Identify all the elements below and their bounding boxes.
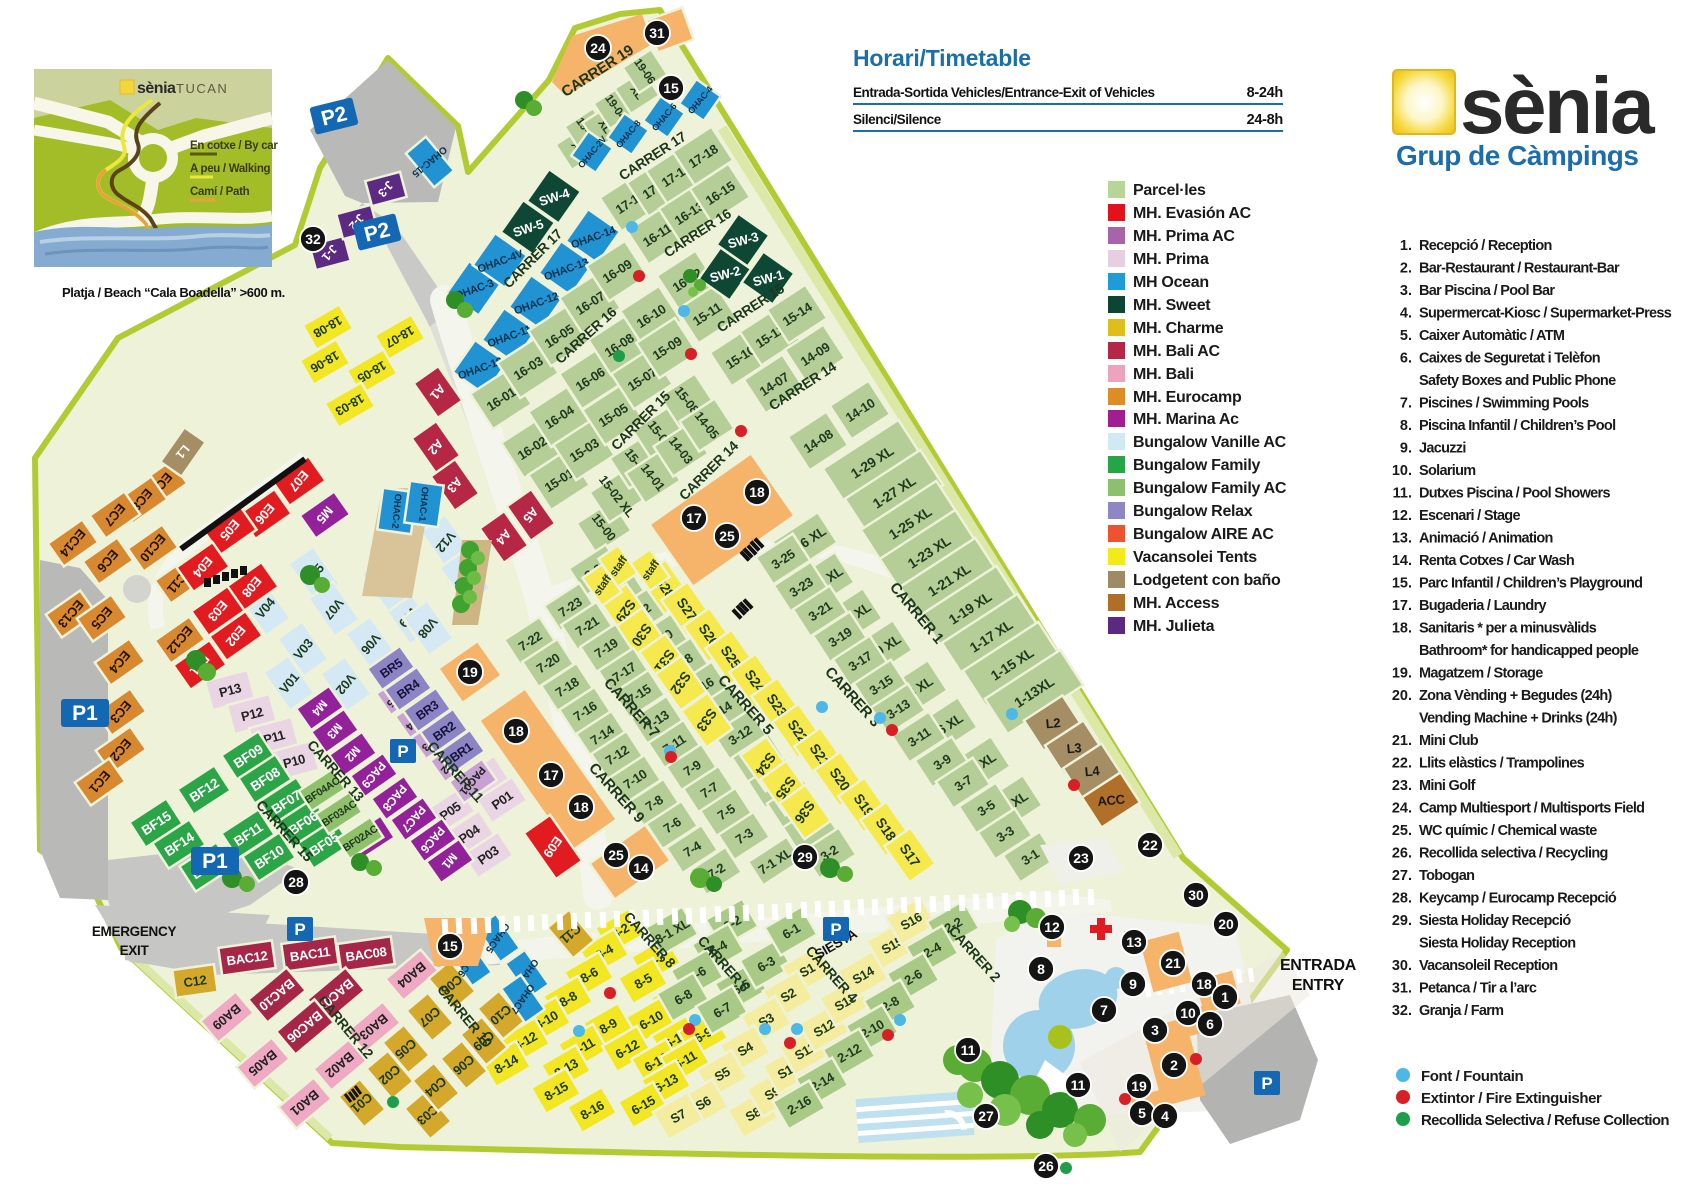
svg-text:19.: 19.: [1392, 666, 1412, 682]
svg-text:Silenci/Silence: Silenci/Silence: [853, 112, 942, 127]
svg-text:9: 9: [1129, 976, 1137, 992]
svg-text:18: 18: [1196, 976, 1212, 992]
svg-text:En cotxe / By car: En cotxe / By car: [190, 140, 278, 152]
svg-text:Entrada-Sortida Vehicles/Entra: Entrada-Sortida Vehicles/Entrance-Exit o…: [853, 85, 1155, 100]
svg-text:8-24h: 8-24h: [1247, 85, 1283, 101]
svg-text:13: 13: [1126, 934, 1142, 950]
svg-text:Lodgetent con baño: Lodgetent con baño: [1133, 572, 1281, 589]
svg-text:31: 31: [649, 25, 665, 41]
svg-text:TUCAN: TUCAN: [176, 81, 228, 96]
svg-text:4: 4: [1161, 1108, 1169, 1124]
svg-text:Piscines / Swimming Pools: Piscines / Swimming Pools: [1419, 396, 1589, 412]
svg-text:MH. Evasión AC: MH. Evasión AC: [1133, 205, 1252, 222]
svg-text:Parcel·les: Parcel·les: [1133, 182, 1206, 199]
svg-text:32: 32: [305, 231, 321, 247]
svg-text:WC químic / Chemical waste: WC químic / Chemical waste: [1419, 823, 1597, 839]
svg-text:Bathroom* for handicapped peop: Bathroom* for handicapped people: [1419, 643, 1639, 659]
svg-text:Bugaderia / Laundry: Bugaderia / Laundry: [1419, 598, 1547, 614]
svg-text:ENTRADA: ENTRADA: [1280, 957, 1357, 974]
svg-text:MH. Sweet: MH. Sweet: [1133, 297, 1211, 314]
svg-text:MH. Prima: MH. Prima: [1133, 251, 1209, 268]
svg-text:P: P: [397, 742, 408, 761]
svg-text:Renta Cotxes / Car Wash: Renta Cotxes / Car Wash: [1419, 553, 1574, 569]
svg-text:29.: 29.: [1392, 913, 1412, 929]
svg-text:Platja / Beach “Cala Boadella”: Platja / Beach “Cala Boadella” >600 m.: [62, 285, 285, 300]
svg-text:30.: 30.: [1392, 958, 1412, 974]
svg-text:Mini Golf: Mini Golf: [1419, 778, 1476, 794]
svg-text:24.: 24.: [1392, 801, 1412, 817]
svg-text:Caixer Automàtic / ATM: Caixer Automàtic / ATM: [1419, 328, 1565, 344]
svg-text:MH. Access: MH. Access: [1133, 595, 1220, 612]
svg-text:Siesta Holiday Recepció: Siesta Holiday Recepció: [1419, 913, 1571, 929]
svg-text:29: 29: [797, 849, 813, 865]
svg-text:6: 6: [1206, 1016, 1214, 1032]
svg-text:6.: 6.: [1400, 351, 1412, 367]
svg-text:MH. Marina Ac: MH. Marina Ac: [1133, 411, 1239, 428]
svg-text:sènia: sènia: [1460, 61, 1655, 150]
svg-text:Safety Boxes and Public Phone: Safety Boxes and Public Phone: [1419, 373, 1616, 389]
svg-text:ACC: ACC: [1097, 791, 1126, 808]
svg-text:19: 19: [462, 664, 478, 680]
svg-text:Tobogan: Tobogan: [1419, 868, 1474, 884]
svg-text:EMERGENCY: EMERGENCY: [92, 924, 177, 939]
svg-text:18: 18: [508, 723, 524, 739]
svg-text:14.: 14.: [1392, 553, 1412, 569]
svg-text:25: 25: [719, 528, 735, 544]
svg-text:15: 15: [442, 938, 458, 954]
svg-text:23.: 23.: [1392, 778, 1412, 794]
svg-text:Recollida selectiva / Recyclin: Recollida selectiva / Recycling: [1419, 846, 1608, 862]
svg-text:P1: P1: [202, 850, 228, 873]
svg-text:MH. Prima AC: MH. Prima AC: [1133, 228, 1235, 245]
svg-text:11: 11: [961, 1042, 976, 1058]
svg-text:3: 3: [1151, 1022, 1159, 1038]
svg-text:Piscina Infantil / Children’s: Piscina Infantil / Children’s Pool: [1419, 418, 1615, 434]
svg-text:9.: 9.: [1400, 441, 1412, 457]
svg-text:Bungalow Family: Bungalow Family: [1133, 457, 1260, 474]
svg-text:8.: 8.: [1400, 418, 1412, 434]
svg-text:ENTRY: ENTRY: [1292, 977, 1345, 994]
svg-text:Grup de Càmpings: Grup de Càmpings: [1396, 140, 1638, 171]
svg-text:11.: 11.: [1393, 486, 1412, 502]
svg-text:Zona Vènding + Begudes (24h): Zona Vènding + Begudes (24h): [1419, 688, 1613, 704]
svg-text:Recollida Selectiva / Refuse C: Recollida Selectiva / Refuse Collection: [1421, 1112, 1669, 1129]
svg-text:Mini Club: Mini Club: [1419, 733, 1479, 749]
svg-text:28: 28: [288, 874, 304, 890]
svg-text:Extintor / Fire Extinguisher: Extintor / Fire Extinguisher: [1421, 1090, 1602, 1107]
svg-text:Font / Fountain: Font / Fountain: [1421, 1068, 1524, 1085]
svg-text:Granja / Farm: Granja / Farm: [1419, 1003, 1503, 1019]
svg-text:Siesta Holiday Reception: Siesta Holiday Reception: [1419, 936, 1575, 952]
svg-text:4.: 4.: [1400, 306, 1412, 322]
svg-text:A peu / Walking: A peu / Walking: [190, 163, 271, 175]
svg-text:Caixes de Seguretat i Telèfon: Caixes de Seguretat i Telèfon: [1419, 351, 1600, 367]
svg-text:Dutxes Piscina / Pool Showers: Dutxes Piscina / Pool Showers: [1419, 486, 1610, 502]
svg-text:12: 12: [1044, 919, 1060, 935]
svg-text:Escenari / Stage: Escenari / Stage: [1419, 508, 1520, 524]
svg-text:2.: 2.: [1400, 261, 1412, 277]
svg-text:30: 30: [1188, 887, 1204, 903]
svg-text:3.: 3.: [1400, 283, 1412, 299]
svg-text:18.: 18.: [1392, 621, 1412, 637]
svg-text:Bungalow Vanille AC: Bungalow Vanille AC: [1133, 434, 1287, 451]
svg-text:Horari/Timetable: Horari/Timetable: [853, 45, 1031, 71]
svg-text:C12: C12: [183, 972, 208, 990]
svg-text:5: 5: [1138, 1105, 1146, 1121]
svg-text:Animació / Animation: Animació / Animation: [1419, 531, 1553, 547]
svg-text:24-8h: 24-8h: [1247, 112, 1283, 128]
svg-text:P: P: [830, 920, 841, 939]
svg-text:17: 17: [686, 510, 702, 526]
svg-text:MH Ocean: MH Ocean: [1133, 274, 1209, 291]
svg-text:15.: 15.: [1392, 576, 1412, 592]
svg-text:24: 24: [590, 40, 606, 56]
svg-text:7.: 7.: [1400, 396, 1412, 412]
svg-text:sènia: sènia: [137, 80, 176, 97]
svg-text:11: 11: [1071, 1077, 1086, 1093]
svg-text:Camí / Path: Camí / Path: [190, 186, 250, 198]
svg-text:Parc Infantil / Children’s Pla: Parc Infantil / Children’s Playground: [1419, 576, 1642, 592]
svg-text:Bungalow Family AC: Bungalow Family AC: [1133, 480, 1287, 497]
svg-text:20.: 20.: [1392, 688, 1412, 704]
svg-text:L3: L3: [1066, 740, 1082, 756]
svg-text:18: 18: [749, 484, 765, 500]
svg-text:25: 25: [608, 847, 624, 863]
svg-text:7: 7: [1100, 1002, 1108, 1018]
svg-text:19: 19: [1131, 1078, 1147, 1094]
svg-text:Vacansoleil Reception: Vacansoleil Reception: [1419, 958, 1557, 974]
svg-text:Llits elàstics / Trampolines: Llits elàstics / Trampolines: [1419, 756, 1585, 772]
svg-text:Recepció / Reception: Recepció / Reception: [1419, 238, 1552, 254]
svg-text:22.: 22.: [1392, 756, 1412, 772]
svg-text:10: 10: [1180, 1005, 1196, 1021]
svg-text:Bungalow Relax: Bungalow Relax: [1133, 503, 1253, 520]
svg-text:14: 14: [633, 860, 649, 876]
svg-text:13.: 13.: [1392, 531, 1412, 547]
svg-text:27: 27: [978, 1108, 994, 1124]
svg-text:MH. Eurocamp: MH. Eurocamp: [1133, 389, 1242, 406]
svg-text:MH. Julieta: MH. Julieta: [1133, 618, 1215, 635]
svg-text:1: 1: [1221, 989, 1229, 1005]
svg-text:Vending Machine + Drinks (24h): Vending Machine + Drinks (24h): [1419, 711, 1618, 727]
svg-text:L2: L2: [1045, 715, 1061, 731]
svg-text:1.: 1.: [1400, 238, 1412, 254]
svg-text:21.: 21.: [1392, 733, 1412, 749]
svg-text:21: 21: [1165, 955, 1181, 971]
svg-text:EXIT: EXIT: [120, 943, 150, 958]
svg-text:12.: 12.: [1392, 508, 1412, 524]
svg-text:Bungalow AIRE AC: Bungalow AIRE AC: [1133, 526, 1274, 543]
svg-text:2: 2: [1170, 1057, 1178, 1073]
svg-text:23: 23: [1073, 850, 1089, 866]
svg-text:Petanca / Tir a l’arc: Petanca / Tir a l’arc: [1419, 981, 1537, 997]
svg-text:25.: 25.: [1392, 823, 1412, 839]
svg-text:Magatzem / Storage: Magatzem / Storage: [1419, 666, 1543, 682]
svg-text:MH. Bali: MH. Bali: [1133, 366, 1194, 383]
svg-text:8: 8: [1037, 961, 1045, 977]
svg-text:17.: 17.: [1392, 598, 1412, 614]
svg-text:31.: 31.: [1392, 981, 1412, 997]
svg-text:Solarium: Solarium: [1419, 463, 1475, 479]
svg-text:26.: 26.: [1392, 846, 1412, 862]
svg-text:P: P: [294, 920, 305, 939]
svg-text:Bar-Restaurant / Restaurant-Ba: Bar-Restaurant / Restaurant-Bar: [1419, 261, 1620, 277]
svg-text:26: 26: [1038, 1158, 1054, 1174]
svg-text:22: 22: [1142, 837, 1158, 853]
svg-text:Camp Multiesport / Multisports: Camp Multiesport / Multisports Field: [1419, 801, 1644, 817]
svg-text:MH. Charme: MH. Charme: [1133, 320, 1224, 337]
svg-text:Sanitaris * per a minusvàlids: Sanitaris * per a minusvàlids: [1419, 621, 1597, 637]
svg-text:Bar Piscina / Pool Bar: Bar Piscina / Pool Bar: [1419, 283, 1555, 299]
svg-text:Vacansolei Tents: Vacansolei Tents: [1133, 549, 1257, 566]
svg-text:Jacuzzi: Jacuzzi: [1419, 441, 1466, 457]
svg-text:5.: 5.: [1400, 328, 1412, 344]
svg-text:P1: P1: [72, 702, 98, 725]
svg-text:20: 20: [1218, 916, 1234, 932]
svg-text:27.: 27.: [1392, 868, 1412, 884]
svg-text:L4: L4: [1084, 763, 1101, 779]
svg-text:18: 18: [573, 799, 589, 815]
svg-text:Supermercat-Kiosc / Supermarke: Supermercat-Kiosc / Supermarket-Press: [1419, 306, 1672, 322]
svg-text:10.: 10.: [1392, 463, 1412, 479]
svg-text:P: P: [1261, 1074, 1272, 1093]
svg-text:32.: 32.: [1392, 1003, 1412, 1019]
svg-text:17: 17: [543, 767, 559, 783]
svg-text:Keycamp / Eurocamp Recepció: Keycamp / Eurocamp Recepció: [1419, 891, 1617, 907]
svg-text:28.: 28.: [1392, 891, 1412, 907]
svg-text:15: 15: [663, 80, 679, 96]
svg-text:MH. Bali AC: MH. Bali AC: [1133, 343, 1221, 360]
